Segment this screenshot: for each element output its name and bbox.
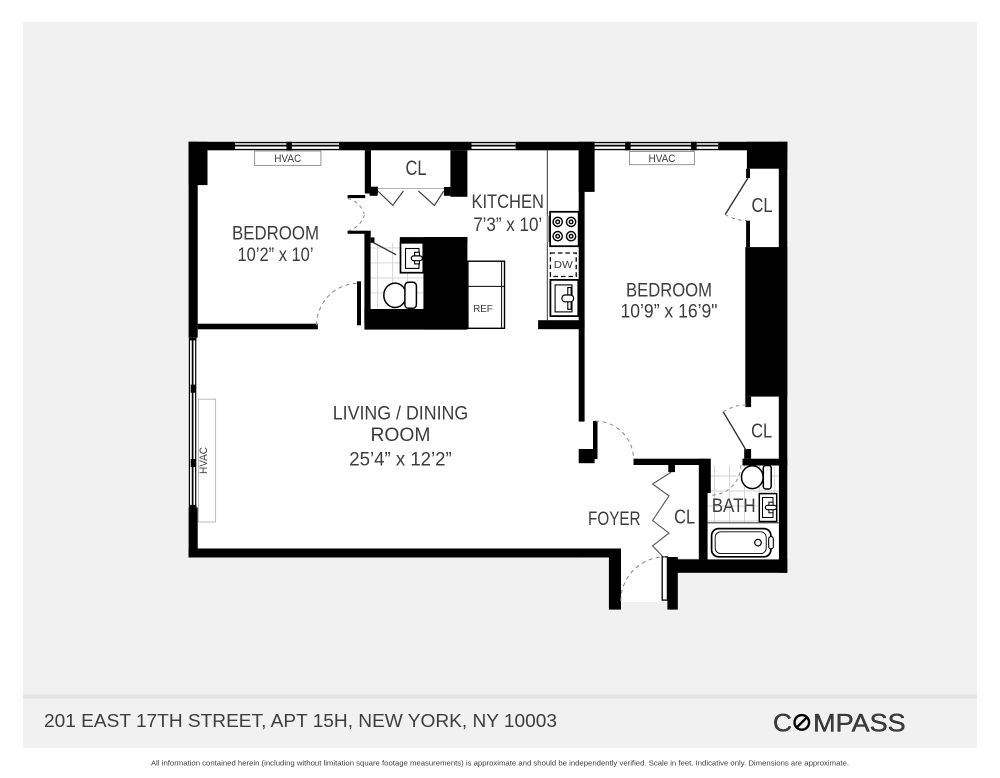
- svg-text:BEDROOM: BEDROOM: [232, 223, 319, 245]
- svg-text:DW: DW: [554, 260, 574, 271]
- svg-text:BEDROOM: BEDROOM: [626, 280, 712, 302]
- svg-text:CL: CL: [752, 195, 773, 217]
- svg-text:HVAC: HVAC: [198, 447, 210, 474]
- svg-text:MPASS: MPASS: [813, 710, 906, 738]
- svg-text:CL: CL: [674, 506, 695, 528]
- svg-text:HVAC: HVAC: [274, 153, 301, 165]
- svg-text:BATH: BATH: [712, 495, 756, 517]
- svg-text:7’3” x 10’: 7’3” x 10’: [473, 214, 542, 236]
- svg-text:LIVING / DINING: LIVING / DINING: [333, 403, 469, 425]
- svg-text:All information contained here: All information contained herein (includ…: [151, 759, 849, 768]
- svg-text:201 EAST 17TH STREET, APT 15H,: 201 EAST 17TH STREET, APT 15H, NEW YORK,…: [44, 711, 557, 731]
- svg-text:FOYER: FOYER: [588, 508, 641, 530]
- svg-text:10’9” x 16’9": 10’9” x 16’9": [621, 301, 718, 323]
- svg-text:REF: REF: [473, 303, 493, 315]
- svg-text:10’2” x 10’: 10’2” x 10’: [238, 244, 314, 266]
- svg-text:HVAC: HVAC: [649, 153, 676, 165]
- svg-text:KITCHEN: KITCHEN: [471, 191, 544, 213]
- svg-text:C: C: [773, 710, 792, 738]
- svg-text:CL: CL: [751, 420, 772, 442]
- svg-text:CL: CL: [406, 157, 427, 180]
- svg-text:25’4” x 12’2”: 25’4” x 12’2”: [349, 449, 452, 471]
- svg-text:ROOM: ROOM: [371, 424, 431, 446]
